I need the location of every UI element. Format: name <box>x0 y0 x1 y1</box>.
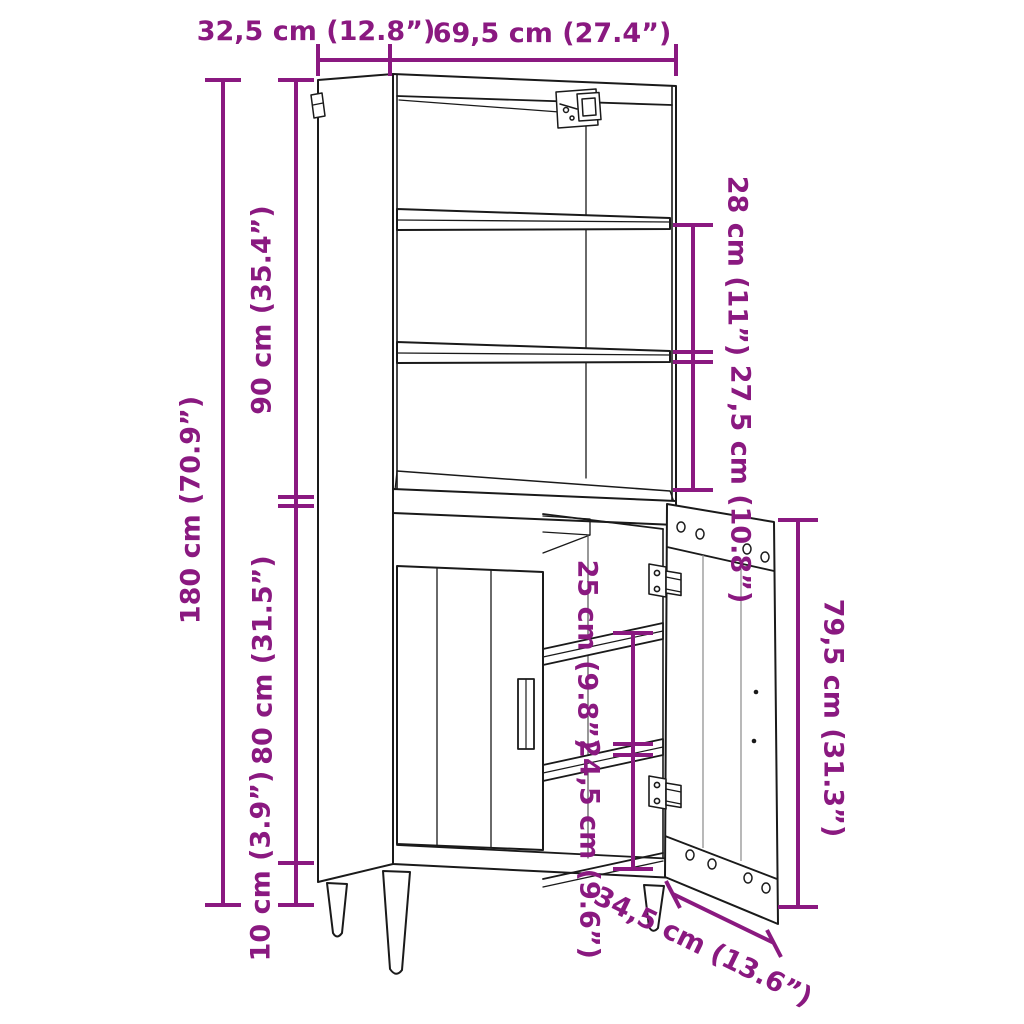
dimension-diagram: 32,5 cm (12.8”) 69,5 cm (27.4”) 180 cm (… <box>0 0 1024 1024</box>
handle-hole <box>752 739 757 744</box>
dim-upper-gap2-label: 27,5 cm (10.8”) <box>725 365 756 604</box>
dim-door-width-label: 34,5 cm (13.6”) <box>589 881 817 1013</box>
dim-legs-height-label: 10 cm (3.9”) <box>246 771 277 962</box>
left-side-panel <box>318 74 393 882</box>
dim-door-height-label: 79,5 cm (31.3”) <box>818 599 849 838</box>
right-door-open <box>649 504 778 924</box>
dim-line-upper-gaps <box>673 225 713 490</box>
wall-bracket-icon <box>311 93 325 118</box>
door-handle <box>518 679 534 749</box>
dim-lower-height-label: 80 cm (31.5”) <box>248 555 279 765</box>
left-door-closed <box>397 566 543 850</box>
handle-hole <box>754 690 759 695</box>
dim-depth-label: 32,5 cm (12.8”) <box>197 16 436 47</box>
dim-upper-height-label: 90 cm (35.4”) <box>247 205 278 415</box>
dim-total-height-label: 180 cm (70.9”) <box>176 396 207 624</box>
dim-lower-gap2-label: 24,5 cm (9.6”) <box>574 739 605 959</box>
dim-lower-gap-label: 25 cm (9.8”) <box>572 560 603 751</box>
dim-line-section-heights <box>278 80 314 905</box>
leg <box>327 883 347 937</box>
cabinet-diagram-svg: 32,5 cm (12.8”) 69,5 cm (27.4”) 180 cm (… <box>0 0 1024 1024</box>
dim-upper-gap-label: 28 cm (11”) <box>722 176 753 357</box>
dim-line-door-height <box>778 520 818 907</box>
dim-width-label: 69,5 cm (27.4”) <box>433 18 672 49</box>
top-hinge-icon <box>556 89 601 128</box>
dim-line-total-height <box>205 80 241 905</box>
leg <box>383 871 410 974</box>
cabinet-drawing <box>311 74 676 887</box>
